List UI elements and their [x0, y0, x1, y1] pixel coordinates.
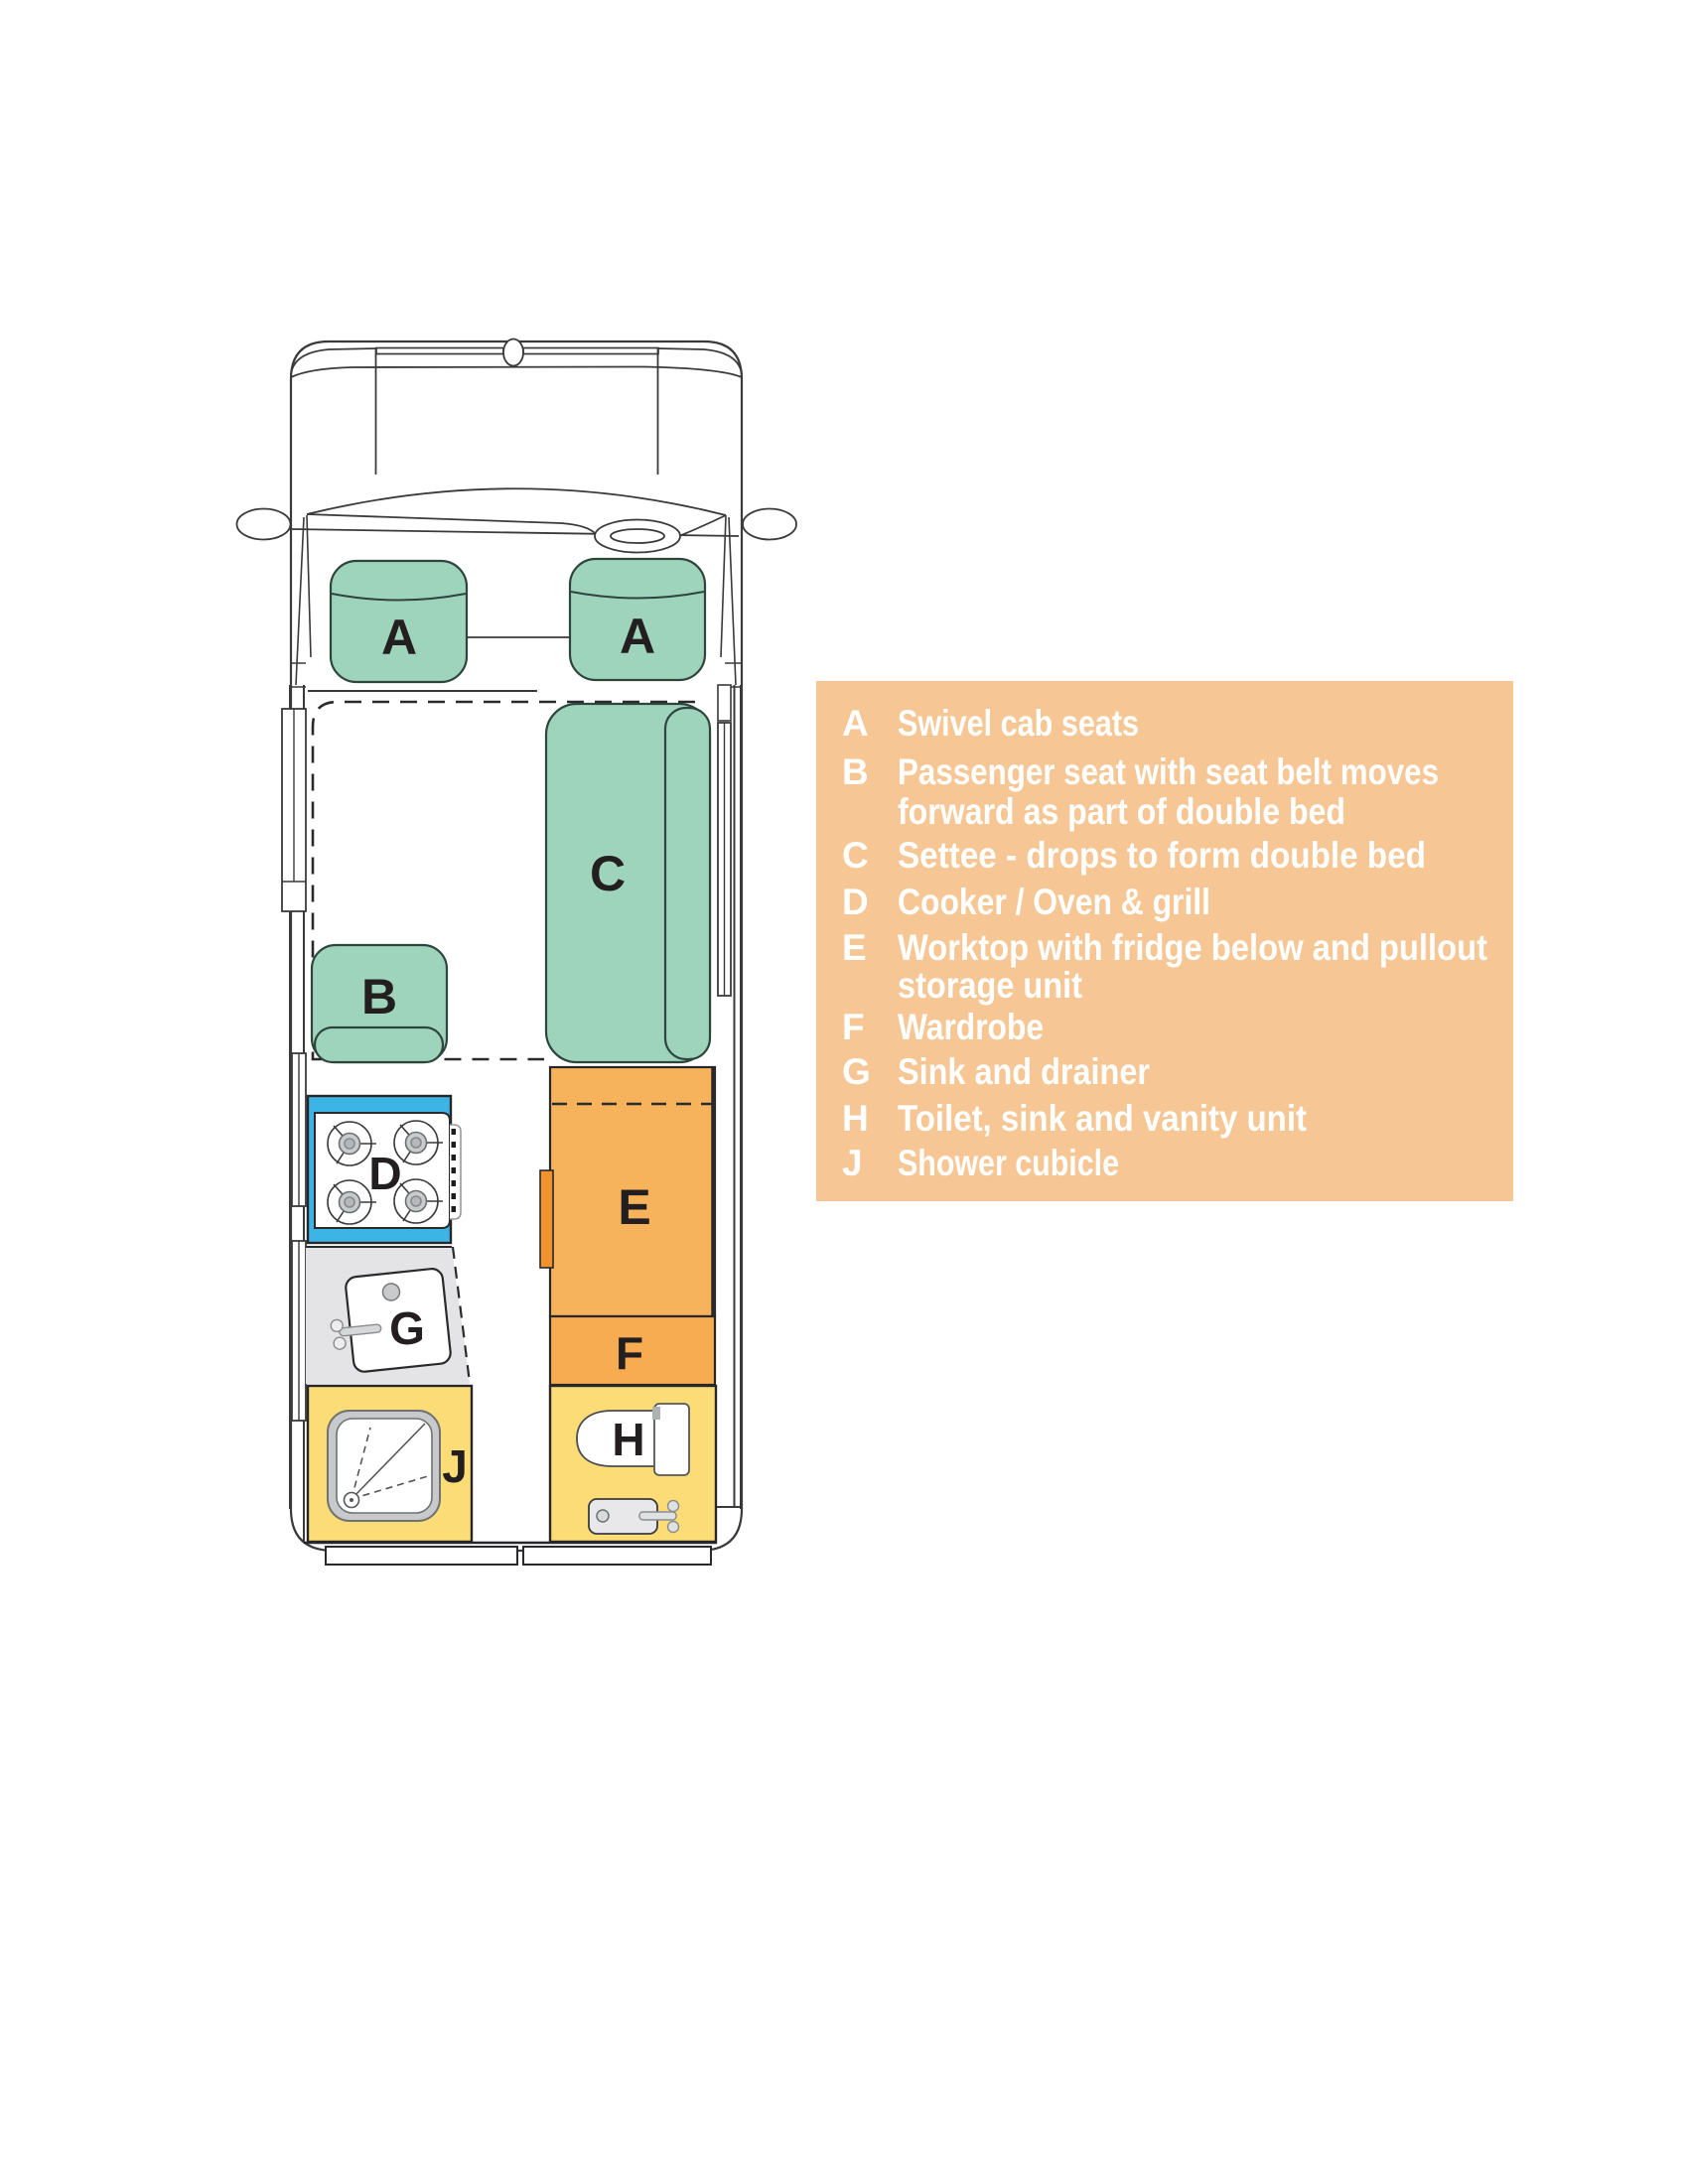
svg-text:storage unit: storage unit: [898, 965, 1082, 1006]
svg-text:B: B: [842, 751, 869, 792]
svg-text:F: F: [616, 1327, 643, 1379]
svg-text:E: E: [618, 1179, 650, 1235]
svg-text:J: J: [442, 1440, 468, 1492]
svg-text:C: C: [842, 835, 869, 876]
svg-text:Swivel cab seats: Swivel cab seats: [898, 703, 1139, 744]
svg-text:Cooker / Oven & grill: Cooker / Oven & grill: [898, 882, 1210, 922]
svg-text:H: H: [842, 1098, 869, 1139]
svg-text:A: A: [842, 703, 869, 744]
svg-text:E: E: [842, 927, 867, 968]
svg-text:Settee - drops to form double: Settee - drops to form double bed: [898, 835, 1426, 876]
svg-text:C: C: [590, 846, 626, 901]
svg-text:G: G: [842, 1051, 871, 1092]
svg-text:D: D: [842, 882, 869, 922]
svg-text:Toilet, sink and vanity unit: Toilet, sink and vanity unit: [898, 1098, 1307, 1139]
svg-text:forward as part of double bed: forward as part of double bed: [898, 791, 1345, 832]
svg-text:Shower cubicle: Shower cubicle: [898, 1143, 1119, 1183]
svg-text:H: H: [612, 1414, 644, 1465]
svg-text:Worktop with fridge below and: Worktop with fridge below and pullout: [898, 927, 1487, 968]
svg-text:B: B: [361, 969, 397, 1024]
svg-text:J: J: [842, 1143, 863, 1183]
svg-text:Sink and drainer: Sink and drainer: [898, 1051, 1150, 1092]
svg-text:Wardrobe: Wardrobe: [898, 1007, 1044, 1047]
svg-text:A: A: [381, 610, 417, 665]
svg-text:Passenger seat with seat belt: Passenger seat with seat belt moves: [898, 751, 1439, 792]
svg-text:F: F: [842, 1007, 865, 1047]
svg-text:G: G: [389, 1302, 425, 1354]
svg-text:A: A: [620, 609, 655, 664]
svg-text:D: D: [368, 1148, 401, 1199]
